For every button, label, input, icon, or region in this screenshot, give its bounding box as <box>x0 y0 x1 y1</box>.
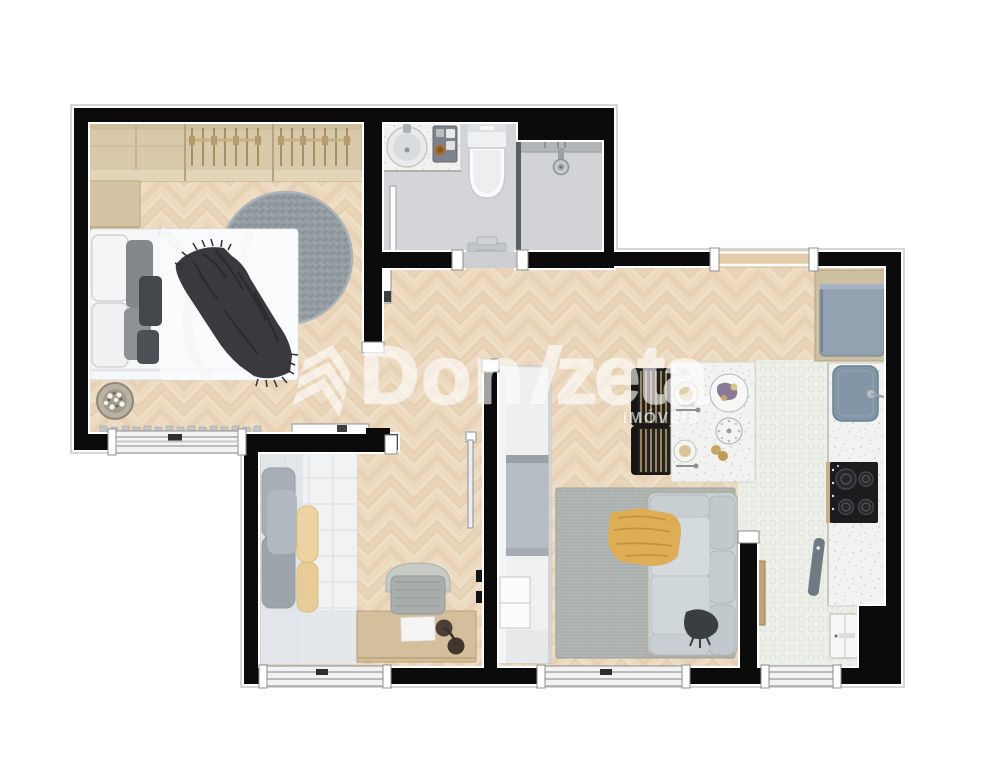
svg-text:Don: Don <box>360 330 525 421</box>
svg-text:zeta: zeta <box>556 330 709 421</box>
svg-text:IMÓVEIS: IMÓVEIS <box>623 409 700 427</box>
